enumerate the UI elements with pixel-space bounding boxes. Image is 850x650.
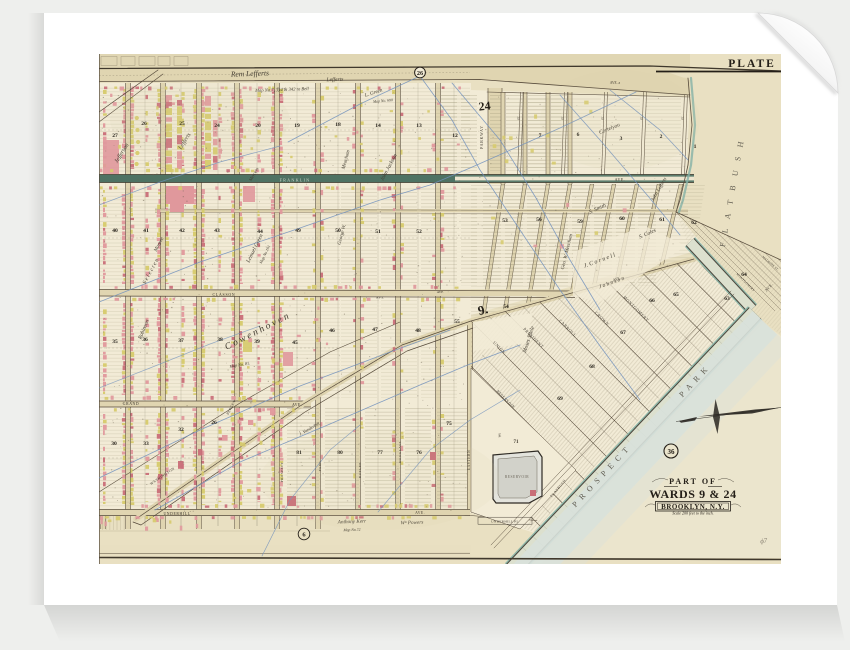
svg-text:41: 41 xyxy=(143,228,149,234)
svg-text:37: 37 xyxy=(178,338,184,344)
svg-text:Scale 200 feet to the inch.: Scale 200 feet to the inch. xyxy=(672,511,713,516)
svg-text:69: 69 xyxy=(557,396,563,402)
svg-text:Rem Lefferts: Rem Lefferts xyxy=(230,68,269,78)
svg-text:1: 1 xyxy=(694,144,697,150)
svg-text:36: 36 xyxy=(668,448,676,456)
svg-text:GRAND: GRAND xyxy=(123,402,140,406)
svg-text:68: 68 xyxy=(589,364,595,370)
svg-text:54: 54 xyxy=(503,304,509,310)
svg-text:55: 55 xyxy=(454,319,460,325)
svg-text:59: 59 xyxy=(577,219,583,225)
svg-text:7: 7 xyxy=(539,133,542,139)
svg-text:51: 51 xyxy=(375,229,381,235)
svg-text:48: 48 xyxy=(415,328,421,334)
svg-text:39: 39 xyxy=(254,339,260,345)
svg-text:40: 40 xyxy=(112,228,118,234)
svg-text:47: 47 xyxy=(372,327,378,333)
svg-text:14: 14 xyxy=(375,123,381,129)
svg-text:60: 60 xyxy=(619,216,625,222)
svg-text:65: 65 xyxy=(673,292,679,298)
svg-text:Lefferts: Lefferts xyxy=(325,76,343,84)
svg-text:53: 53 xyxy=(502,218,508,224)
svg-text:30: 30 xyxy=(111,441,117,447)
svg-text:52: 52 xyxy=(416,229,422,235)
svg-text:AVE.: AVE. xyxy=(615,177,626,182)
svg-text:RESERVOIR: RESERVOIR xyxy=(505,475,529,479)
svg-text:WARDS 9 & 24: WARDS 9 & 24 xyxy=(649,487,737,501)
svg-text:PARKWAY: PARKWAY xyxy=(480,125,484,149)
svg-text:38: 38 xyxy=(217,337,223,343)
svg-text:PLATE: PLATE xyxy=(728,58,776,70)
svg-text:26: 26 xyxy=(211,420,217,426)
svg-text:62: 62 xyxy=(691,220,697,226)
svg-text:49: 49 xyxy=(295,228,301,234)
svg-text:61: 61 xyxy=(659,217,665,223)
svg-text:AVE.: AVE. xyxy=(292,403,302,407)
svg-text:45: 45 xyxy=(292,340,298,346)
svg-text:66: 66 xyxy=(649,298,655,304)
svg-text:UNDERHILL: UNDERHILL xyxy=(163,512,190,516)
svg-text:UNDERHILL PL: UNDERHILL PL xyxy=(491,519,519,523)
svg-text:42: 42 xyxy=(179,228,185,234)
svg-text:75: 75 xyxy=(446,421,452,427)
svg-text:19: 19 xyxy=(294,123,300,129)
svg-text:32: 32 xyxy=(178,427,184,433)
svg-text:AVE: AVE xyxy=(376,296,384,300)
svg-text:13: 13 xyxy=(416,123,422,129)
svg-text:35: 35 xyxy=(112,339,118,345)
svg-text:63: 63 xyxy=(724,296,730,302)
svg-text:PART OF: PART OF xyxy=(669,477,717,486)
svg-text:12: 12 xyxy=(452,133,458,139)
svg-text:46: 46 xyxy=(329,328,335,334)
svg-text:FRANKLIN: FRANKLIN xyxy=(280,177,311,182)
svg-text:24: 24 xyxy=(478,98,491,113)
svg-text:ST.: ST. xyxy=(517,116,521,120)
svg-text:AVE: AVE xyxy=(437,290,444,294)
svg-text:26: 26 xyxy=(417,70,423,77)
svg-text:CLASSON: CLASSON xyxy=(213,293,236,297)
svg-text:43: 43 xyxy=(214,228,220,234)
svg-text:67: 67 xyxy=(620,330,626,336)
svg-text:71: 71 xyxy=(514,440,520,445)
svg-text:18: 18 xyxy=(335,122,341,128)
svg-text:56: 56 xyxy=(536,217,542,223)
svg-text:33: 33 xyxy=(143,441,149,447)
